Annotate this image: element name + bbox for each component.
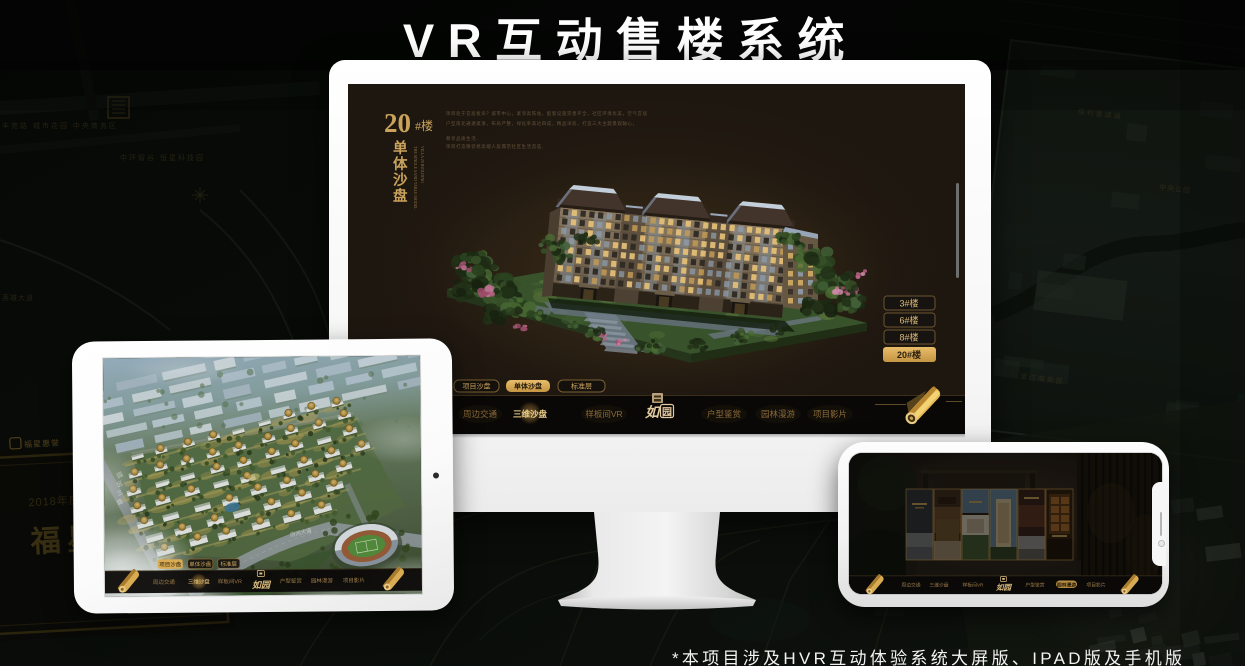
svg-text:园林漫游: 园林漫游	[311, 576, 334, 584]
svg-text:项目影片: 项目影片	[1086, 582, 1105, 589]
svg-text:三维沙盘: 三维沙盘	[929, 582, 948, 589]
svg-text:户型鉴赏: 户型鉴赏	[280, 577, 303, 585]
svg-text:单体沙盘: 单体沙盘	[189, 560, 212, 568]
svg-text:项目影片: 项目影片	[343, 576, 365, 584]
svg-text:园林漫游: 园林漫游	[1057, 582, 1076, 589]
svg-text:标准层: 标准层	[220, 560, 237, 568]
svg-text:周边交通: 周边交通	[901, 582, 920, 589]
svg-text:样板间VR: 样板间VR	[218, 577, 242, 585]
svg-text:如园: 如园	[996, 583, 1012, 592]
svg-text:如园: 如园	[252, 580, 272, 590]
svg-text:周边交通: 周边交通	[153, 578, 176, 586]
svg-text:三维沙盘: 三维沙盘	[188, 577, 211, 585]
svg-text:样板间VR: 样板间VR	[962, 582, 984, 589]
svg-text:项目沙盘: 项目沙盘	[159, 560, 182, 568]
svg-text:户型鉴赏: 户型鉴赏	[1025, 582, 1044, 589]
